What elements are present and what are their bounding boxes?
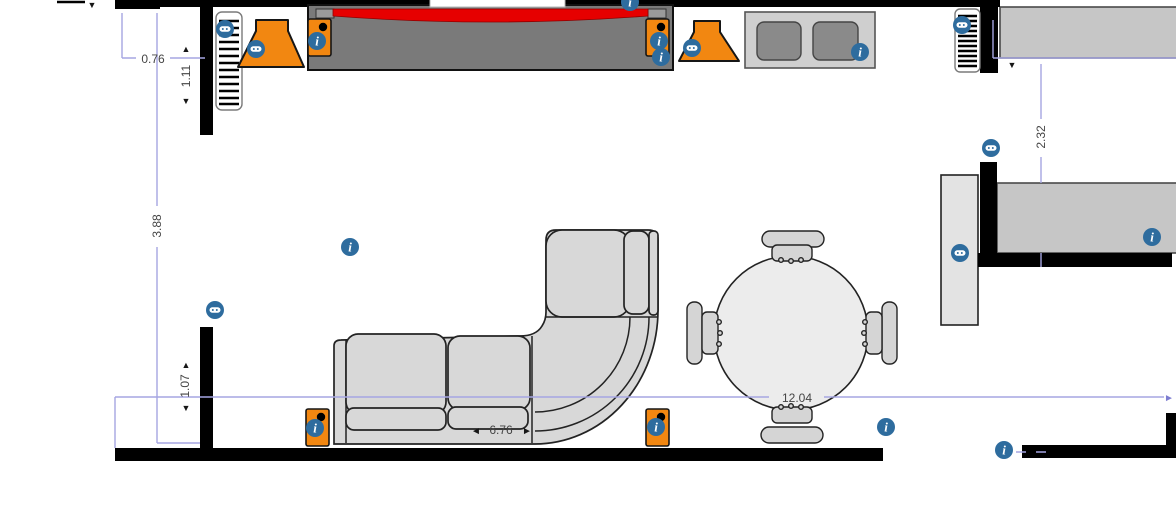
wall-left-lower <box>200 327 213 448</box>
info-glyph: i <box>315 34 319 49</box>
screen-bracket-right <box>648 9 666 18</box>
right-room-counter-top[interactable] <box>1000 7 1176 58</box>
sofa-back-band <box>624 231 649 314</box>
stepper-down-arrow[interactable]: ▼ <box>1008 60 1017 70</box>
info-icon[interactable]: i <box>851 43 869 61</box>
stepper-up-arrow[interactable]: ▲ <box>182 44 191 54</box>
stepper-right-arrow[interactable]: ► <box>522 426 532 437</box>
wall-bottom <box>115 448 883 461</box>
info-glyph: i <box>1002 443 1006 458</box>
wall-left-upper <box>200 0 213 135</box>
dimension-label-top-height[interactable]: 1.11 <box>179 64 193 87</box>
horn-speaker-shape <box>238 20 304 67</box>
horn-speaker-left[interactable] <box>238 20 304 67</box>
measure-icon[interactable] <box>951 244 969 262</box>
dimension-label-top-width[interactable]: 0.76 <box>141 52 165 66</box>
sectional-sofa[interactable] <box>334 230 658 444</box>
dimension-line-1204 <box>115 397 1164 448</box>
speaker-driver-dot <box>319 23 327 31</box>
console-door-left <box>757 22 801 60</box>
info-icon[interactable]: i <box>652 48 670 66</box>
info-glyph: i <box>659 50 663 65</box>
info-glyph: i <box>313 421 317 436</box>
dimension-arrowhead-right: ► <box>1164 393 1174 404</box>
stepper-up-arrow[interactable]: ▲ <box>182 360 191 370</box>
floor-plan-canvas[interactable]: ▼ ▲ ▼ ▲ ▼ ▼ ◄ ► ► 0.76 1.11 3.88 1.07 6.… <box>0 0 1176 506</box>
sofa-cushion <box>346 334 446 414</box>
stepper-down-arrow[interactable]: ▼ <box>182 96 191 106</box>
info-glyph: i <box>348 240 352 255</box>
round-table[interactable] <box>714 256 868 410</box>
speaker-driver-dot <box>657 23 665 31</box>
dimension-label-left-wall[interactable]: 3.88 <box>150 214 164 238</box>
chair-right[interactable] <box>862 302 897 364</box>
dimension-label-sofa-width[interactable]: 6.76 <box>489 423 513 437</box>
measure-icon[interactable] <box>683 39 701 57</box>
sofa-front-band <box>346 408 446 430</box>
tooltip-fragment <box>430 0 565 7</box>
dining-set[interactable] <box>687 231 897 443</box>
sofa-cushion <box>448 336 530 410</box>
dimension-label-bottom-height[interactable]: 1.07 <box>178 374 192 398</box>
wall-bottom-right-vertical <box>1166 413 1176 458</box>
sofa-back-band <box>649 231 658 315</box>
info-icon[interactable]: i <box>995 441 1013 459</box>
console-door-right <box>813 22 858 60</box>
wall-top-cap <box>115 0 160 9</box>
info-glyph: i <box>858 45 862 60</box>
measure-icon[interactable] <box>216 20 234 38</box>
wall-right-mid <box>980 162 997 267</box>
sofa-front-band <box>448 407 528 429</box>
info-glyph: i <box>654 420 658 435</box>
measure-icon[interactable] <box>206 301 224 319</box>
stepper-down-arrow[interactable]: ▼ <box>88 0 97 10</box>
measure-icon[interactable] <box>953 16 971 34</box>
dimension-label-room-width[interactable]: 12.04 <box>782 391 812 405</box>
tv-screen-unit[interactable] <box>308 5 673 70</box>
stepper-left-arrow[interactable]: ◄ <box>471 426 481 437</box>
info-icon[interactable]: i <box>877 418 895 436</box>
measure-icon[interactable] <box>982 139 1000 157</box>
wall-right-upper <box>980 0 998 73</box>
stepper-down-arrow[interactable]: ▼ <box>182 403 191 413</box>
info-glyph: i <box>1150 230 1154 245</box>
info-glyph: i <box>657 34 661 49</box>
info-glyph: i <box>884 420 888 435</box>
info-icon[interactable]: i <box>650 32 668 50</box>
info-icon[interactable]: i <box>647 418 665 436</box>
info-icon[interactable]: i <box>1143 228 1161 246</box>
dimension-label-right-wall[interactable]: 2.32 <box>1034 125 1048 149</box>
chair-bottom[interactable] <box>761 404 823 443</box>
counter-top-surface <box>1000 7 1176 58</box>
info-icon[interactable]: i <box>308 32 326 50</box>
measure-icon[interactable] <box>247 40 265 58</box>
screen-bracket-left <box>316 9 334 18</box>
info-glyph: i <box>628 0 632 10</box>
sofa-cushion <box>546 230 630 317</box>
wall-mid-horizontal <box>978 253 1172 267</box>
info-icon[interactable]: i <box>341 238 359 256</box>
info-icon[interactable]: i <box>306 419 324 437</box>
